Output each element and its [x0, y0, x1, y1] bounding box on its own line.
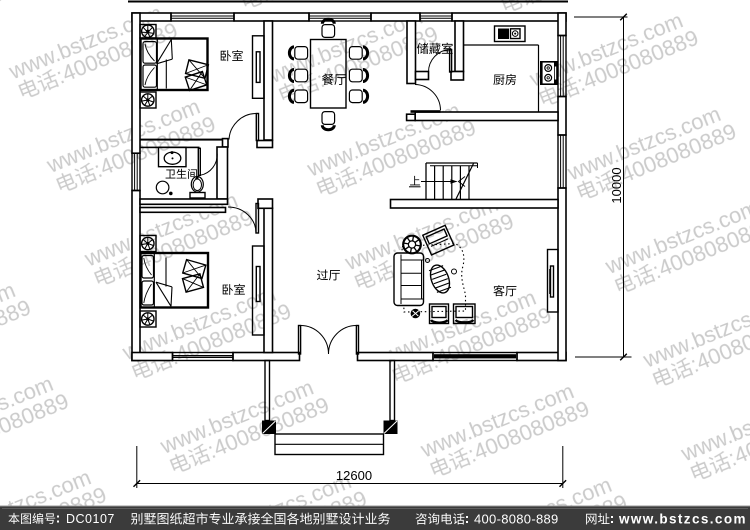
- svg-text:www.bstzcs.com: www.bstzcs.com: [618, 512, 747, 527]
- svg-text:DC0107: DC0107: [66, 512, 115, 526]
- svg-text:12600: 12600: [336, 468, 372, 483]
- svg-text:400-8080-889: 400-8080-889: [474, 512, 559, 527]
- svg-text:10000: 10000: [609, 167, 624, 203]
